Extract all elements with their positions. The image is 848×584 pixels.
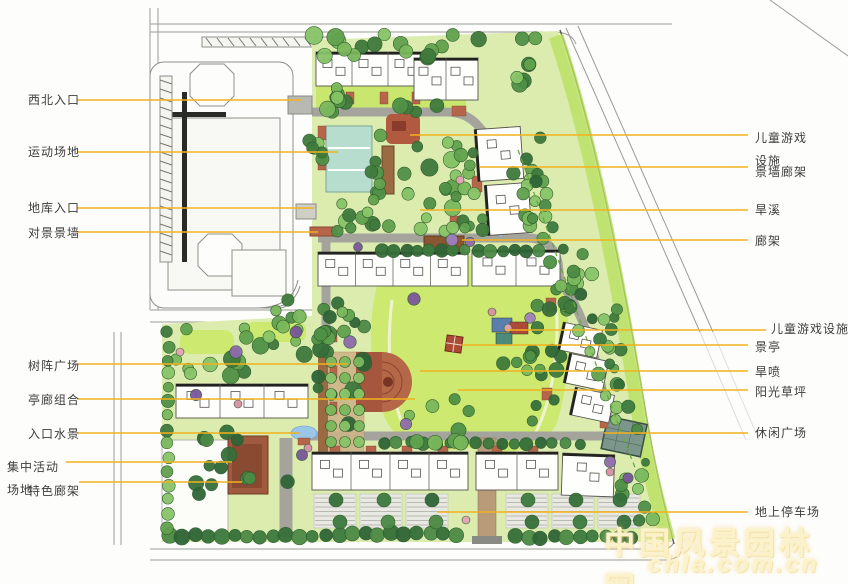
garage-ramp (296, 204, 316, 219)
label-feature-view-wall: 对景景墙 (28, 226, 80, 241)
label-sports-field: 运动场地 (28, 145, 80, 160)
label-entrance-water: 入口水景 (28, 427, 80, 442)
label-dry-creek: 旱溪 (755, 203, 781, 218)
sports-courts (326, 126, 372, 192)
children-play-mat-teal (496, 333, 512, 345)
northwest-entrance-plaza (288, 96, 312, 114)
site-plan-drawing (0, 0, 848, 584)
label-pavilion-corridor: 亭廊组合 (28, 393, 80, 408)
south-gate (472, 536, 502, 544)
label-leisure-plaza: 休闲广场 (755, 426, 807, 441)
label-special-trellis: 特色廊架 (28, 484, 80, 499)
label-garage-entrance: 地库入口 (28, 201, 80, 216)
label-northwest-entrance: 西北入口 (28, 93, 80, 108)
children-play-mat-red (510, 322, 528, 334)
landscape-master-plan: 西北入口 运动场地 地库入口 对景景墙 树阵广场 亭廊组合 入口水景 集中活动场… (0, 0, 848, 584)
label-wall-trellis: 景墙廊架 (755, 165, 807, 180)
label-tree-array-plaza: 树阵广场 (28, 359, 80, 374)
label-scenic-pavilion: 景亭 (755, 340, 781, 355)
watermark-url: chla.com.cn (648, 551, 820, 579)
label-trellis: 廊架 (755, 234, 781, 249)
label-sunny-lawn: 阳光草坪 (755, 385, 807, 400)
label-dry-fountain: 旱喷 (755, 365, 781, 380)
label-children-play: 儿童游戏设施 (771, 322, 848, 337)
dry-fountain-point (383, 377, 393, 387)
